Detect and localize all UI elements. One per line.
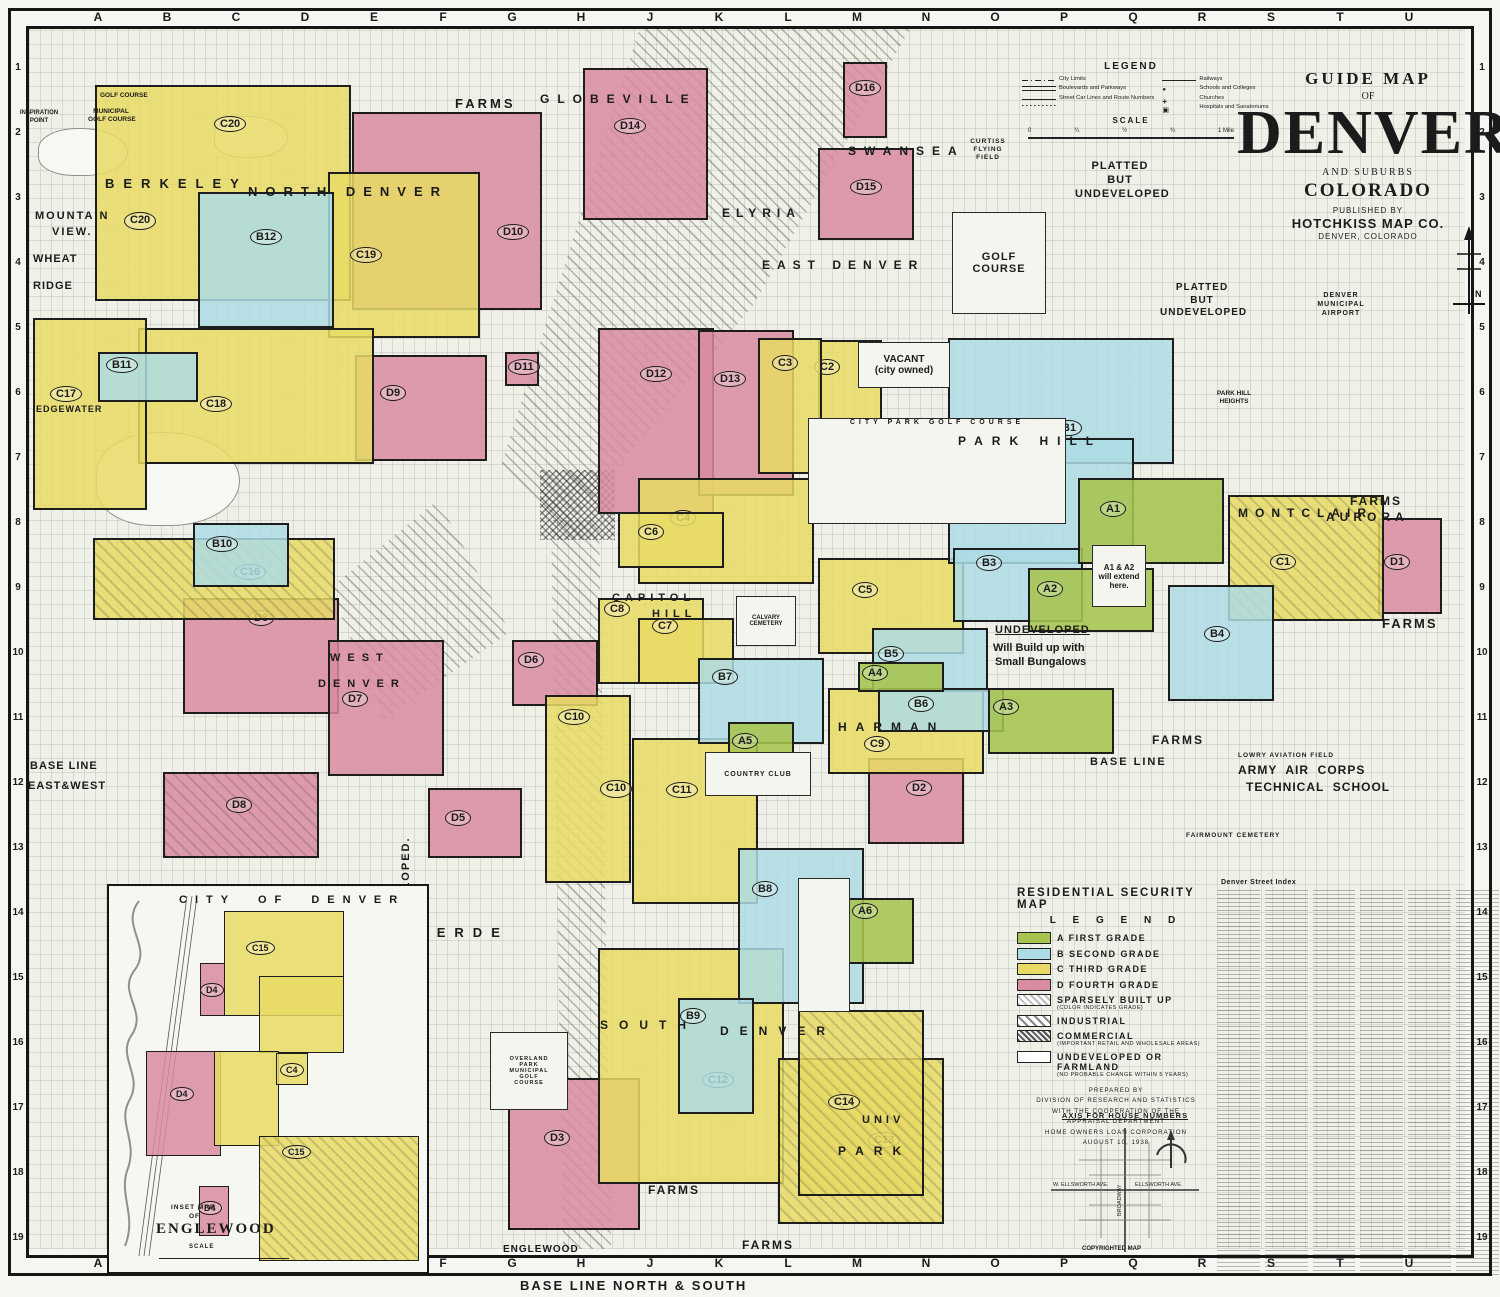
inset-title: CITY OF DENVER (179, 894, 405, 908)
rsm-item-industrial: INDUSTRIAL (1017, 1015, 1215, 1027)
grid-letter-top-Q: Q (1123, 10, 1143, 24)
region-d15: D15 (818, 148, 914, 240)
label-harman: HARMAN (838, 720, 945, 735)
white-area-label: A1 & A2 (1104, 563, 1134, 572)
title-guide-map: GUIDE MAP (1237, 69, 1499, 89)
label-base-line: BASE LINE (1090, 756, 1167, 770)
region-d14: D14 (583, 68, 708, 220)
region-d8: D8 (163, 772, 319, 858)
region-code-c9: C9 (864, 736, 890, 752)
region-d5: D5 (428, 788, 522, 858)
legend-item-label: Railways (1199, 75, 1222, 84)
region-code-b7: B7 (712, 669, 738, 685)
label-park: PARK (838, 1144, 911, 1159)
white-area-label: GOLF (982, 251, 1017, 263)
label-globeville: GLOBEVILLE (540, 92, 697, 107)
scale-tick: 1 Mile (1218, 128, 1234, 138)
title-and-suburbs: AND SUBURBS (1237, 167, 1499, 178)
label-curtiss-line: CURTISS (968, 138, 1008, 146)
grid-letter-bottom-H: H (571, 1256, 591, 1270)
label-platted-line: PLATTED (1075, 160, 1165, 174)
b-swatch (1017, 948, 1051, 960)
region-code-c19: C19 (350, 247, 382, 263)
inset-scale-bar (159, 1258, 289, 1259)
white-area-a1-a2: A1 & A2will extendhere. (1092, 545, 1146, 607)
rsm-item-commercial: COMMERCIAL(IMPORTANT RETAIL AND WHOLESAL… (1017, 1030, 1215, 1047)
inset-region-code-c4: C4 (280, 1063, 304, 1077)
street-index-column (1360, 889, 1403, 1275)
label-technical-school: TECHNICAL SCHOOL (1246, 780, 1390, 795)
region-code-c18: C18 (200, 396, 232, 412)
grid-letter-top-P: P (1054, 10, 1074, 24)
region-code-c1: C1 (1270, 554, 1296, 570)
white-area-label: COUNTRY CLUB (724, 771, 792, 778)
legend-title: LEGEND (1022, 61, 1240, 72)
region-code-b12: B12 (250, 229, 282, 245)
label-platted: PLATTEDBUTUNDEVELOPED (1075, 160, 1165, 201)
region-d9: D9 (355, 355, 487, 461)
commercial-swatch (1017, 1030, 1051, 1042)
region-code-d1: D1 (1384, 554, 1410, 570)
label-denver-line: AIRPORT (1316, 310, 1366, 319)
rsm-item-sparse: SPARSELY BUILT UP(COLOR INDICATES GRADE) (1017, 994, 1215, 1011)
region-code-d5: D5 (445, 810, 471, 826)
grid-number-left-11: 11 (11, 712, 25, 723)
region-code-c20: C20 (214, 116, 246, 132)
legend-item-label: Schools and Colleges (1199, 84, 1255, 93)
region-code-b6: B6 (908, 696, 934, 712)
dot-symbol-icon (1162, 86, 1196, 91)
grid-letter-top-C: C (226, 10, 246, 24)
grid-letter-top-U: U (1399, 10, 1419, 24)
region-code-b5: B5 (878, 646, 904, 662)
region-code-b4: B4 (1204, 626, 1230, 642)
inset-region-code-d4: D4 (200, 983, 224, 997)
white-area-label: COURSE (514, 1080, 544, 1086)
label-farms: FARMS (742, 1238, 794, 1253)
region-b12: B12 (198, 192, 334, 328)
region-a3: A3 (988, 688, 1114, 754)
compass-icon: N (1449, 224, 1489, 319)
inset-region-code-c15: C15 (246, 941, 275, 955)
legend-item-label: Churches (1199, 94, 1224, 103)
label-municipal: MUNICIPALGOLF COURSE (88, 108, 134, 124)
label-inspiration-line: POINT (18, 118, 60, 126)
grid-number-left-6: 6 (11, 387, 25, 398)
label-base-line: BASE LINE (30, 760, 98, 774)
white-area-calvary: CALVARYCEMETERY (736, 596, 796, 646)
label-aurora: AURORA (1326, 510, 1409, 525)
scale-tick: ¼ (1074, 128, 1079, 138)
grid-letter-bottom-J: J (640, 1256, 660, 1270)
rsm-item-text: C THIRD GRADE (1057, 963, 1148, 974)
rsm-item-label: INDUSTRIAL (1057, 1015, 1127, 1026)
region-code-d2: D2 (906, 780, 932, 796)
label-platted-line: PLATTED (1160, 282, 1244, 295)
grid-letter-top-R: R (1192, 10, 1212, 24)
map-legend: LEGEND City LimitsBoulevards and Parkway… (1022, 61, 1240, 139)
grid-letter-top-M: M (847, 10, 867, 24)
grid-number-left-16: 16 (11, 1037, 25, 1048)
title-published-by: PUBLISHED BY (1237, 206, 1499, 215)
grid-letter-top-O: O (985, 10, 1005, 24)
region-code-c5: C5 (852, 582, 878, 598)
legend-item-railways: Railways (1162, 75, 1268, 84)
label-south: SOUTH (600, 1018, 697, 1033)
label-hill: HILL (652, 608, 696, 622)
label-berkeley: BERKELEY (105, 176, 248, 192)
street-index-title: Denver Street Index (1221, 879, 1499, 886)
grid-letter-top-A: A (88, 10, 108, 24)
rsm-item-subtext: (NO PROBABLE CHANGE WITHIN 5 YEARS) (1057, 1072, 1215, 1078)
label-army-air-corps: ARMY AIR CORPS (1238, 763, 1365, 778)
baseline-north-south-label: BASE LINE NORTH & SOUTH (520, 1278, 747, 1293)
white-area-country-club: COUNTRY CLUB (705, 752, 811, 796)
label-fairmount-cemetery: FAIRMOUNT CEMETERY (1186, 832, 1280, 840)
white-area-vacant: VACANT(city owned) (858, 342, 950, 388)
legend-item-blank (1022, 103, 1154, 107)
region-code-a1: A1 (1100, 501, 1126, 517)
region-c6: C6 (618, 512, 724, 568)
street-index-column (1456, 889, 1499, 1275)
region-code-a4: A4 (862, 665, 888, 681)
legend-item-schools-and-colleges: Schools and Colleges (1162, 84, 1268, 93)
grid-letter-bottom-F: F (433, 1256, 453, 1270)
grid-letter-top-H: H (571, 10, 591, 24)
grid-letter-top-E: E (364, 10, 384, 24)
inset-region-c15: C15 (259, 1136, 419, 1261)
grid-letter-bottom-O: O (985, 1256, 1005, 1270)
region-a4: A4 (858, 662, 944, 692)
label-municipal-line: MUNICIPAL (88, 108, 134, 116)
grid-number-left-8: 8 (11, 517, 25, 528)
region-code-a5: A5 (732, 733, 758, 749)
label-platted: PLATTEDBUTUNDEVELOPED (1160, 282, 1244, 320)
inset-label-scale: SCALE (189, 1244, 214, 1252)
rsm-item-label: B SECOND GRADE (1057, 948, 1161, 959)
white-area-label: COURSE (972, 263, 1025, 275)
rsm-item-undeveloped: UNDEVELOPED OR FARMLAND(NO PROBABLE CHAN… (1017, 1051, 1215, 1078)
grid-number-right-6: 6 (1475, 387, 1489, 398)
region-b11: B11 (98, 352, 198, 402)
rsm-item-label: COMMERCIAL (1057, 1030, 1200, 1041)
region-b10: B10 (193, 523, 289, 587)
grid-letter-top-F: F (433, 10, 453, 24)
label-denver: DENVERMUNICIPALAIRPORT (1316, 292, 1366, 318)
rsm-subtitle: L E G E N D (1017, 915, 1215, 926)
grid-number-left-12: 12 (11, 777, 25, 788)
region-d11: D11 (505, 352, 539, 386)
axis-west-label: W. ELLSWORTH AVE. (1053, 1182, 1109, 1188)
street-index-column (1217, 889, 1260, 1275)
region-d16: D16 (843, 62, 887, 138)
grid-number-left-10: 10 (11, 647, 25, 658)
white-area-golf: GOLFCOURSE (952, 212, 1046, 314)
legend-item-city-limits: City Limits (1022, 75, 1154, 84)
region-code-d9: D9 (380, 385, 406, 401)
scale-title: SCALE (1022, 116, 1240, 125)
axis-for-house-numbers: AXIS FOR HOUSE NUMBERS W. ELLSWORTH AVE.… (1039, 1111, 1211, 1269)
grid-number-right-5: 5 (1475, 322, 1489, 333)
white-area-label: (city owned) (875, 365, 933, 376)
rsm-item-c: C THIRD GRADE (1017, 963, 1215, 975)
label-inspiration: INSPIRATIONPOINT (18, 110, 60, 125)
rsm-item-b: B SECOND GRADE (1017, 948, 1215, 960)
region-code-c6: C6 (638, 524, 664, 540)
label-denver: DENVER (318, 678, 406, 692)
label-platted-line: UNDEVELOPED (1075, 188, 1165, 202)
dots-symbol-icon (1022, 105, 1056, 107)
rsm-item-subtext: (COLOR INDICATES GRADE) (1057, 1005, 1173, 1011)
label-univ: UNIV (862, 1114, 904, 1128)
white-area-overland: OVERLANDPARKMUNICIPALGOLFCOURSE (490, 1032, 568, 1110)
grid-number-left-13: 13 (11, 842, 25, 853)
carline-symbol-icon (1022, 99, 1056, 100)
region-code-d11: D11 (508, 359, 540, 375)
label-denver-line: DENVER (1316, 292, 1366, 301)
grid-letter-bottom-L: L (778, 1256, 798, 1270)
rsm-item-label: UNDEVELOPED OR FARMLAND (1057, 1051, 1215, 1072)
grid-letter-top-J: J (640, 10, 660, 24)
legend-item-label: City Limits (1059, 75, 1086, 84)
street-index: Denver Street Index (1217, 879, 1499, 1277)
industrial-swatch (1017, 1015, 1051, 1027)
region-code-b11: B11 (106, 357, 138, 373)
rsm-item-subtext: (IMPORTANT RETAIL AND WHOLESALE AREAS) (1057, 1041, 1200, 1047)
sq-symbol-icon (1162, 105, 1196, 110)
axis-east-label: ELLSWORTH AVE. (1135, 1182, 1183, 1188)
region-code-d14: D14 (614, 118, 646, 134)
label-west: WEST (330, 652, 390, 666)
grid-number-right-9: 9 (1475, 582, 1489, 593)
rsm-item-text: D FOURTH GRADE (1057, 979, 1160, 990)
grid-letter-top-D: D (295, 10, 315, 24)
region-code-d3: D3 (544, 1130, 570, 1146)
rsm-item-label: SPARSELY BUILT UP (1057, 994, 1173, 1005)
rsm-item-text: SPARSELY BUILT UP(COLOR INDICATES GRADE) (1057, 994, 1173, 1011)
grid-letter-bottom-K: K (709, 1256, 729, 1270)
label-capitol: CAPITOL (612, 592, 695, 606)
label-wheat: WHEAT (33, 253, 78, 267)
label-c10: C10 (600, 780, 632, 798)
region-code-c14: C14 (828, 1094, 860, 1110)
grid-letter-top-G: G (502, 10, 522, 24)
inset-label-inset-map: INSET MAP (171, 1204, 215, 1212)
region-code-c10: C10 (558, 709, 590, 725)
grid-letter-bottom-G: G (502, 1256, 522, 1270)
cross-symbol-icon (1162, 96, 1196, 101)
white-area-park (798, 878, 850, 1012)
grid-number-left-18: 18 (11, 1167, 25, 1178)
label-platted-line: BUT (1075, 174, 1165, 188)
legend-item-street-car-lines-and-route-numbers: Street Car Lines and Route Numbers (1022, 94, 1154, 103)
label-farms: FARMS (1152, 733, 1204, 748)
label-mountain: MOUNTAIN (35, 210, 109, 224)
label-east-west: EAST&WEST (28, 780, 106, 794)
label-edgewater: EDGEWATER (36, 404, 102, 415)
label-north-denver: NORTH DENVER (248, 184, 448, 200)
rail-symbol-icon (1162, 80, 1196, 81)
grid-number-left-19: 19 (11, 1232, 25, 1243)
grid-number-left-3: 3 (11, 192, 25, 203)
grid-number-left-14: 14 (11, 907, 25, 918)
c-swatch (1017, 963, 1051, 975)
grid-letter-top-K: K (709, 10, 729, 24)
rsm-item-text: B SECOND GRADE (1057, 948, 1161, 959)
label-englewood: ENGLEWOOD (503, 1244, 579, 1257)
region-code-b3: B3 (976, 555, 1002, 571)
region-code-a2: A2 (1037, 581, 1063, 597)
label-platted-line: UNDEVELOPED (1160, 307, 1244, 320)
white-area-label: CITY PARK GOLF COURSE (850, 419, 1024, 426)
title-denver: DENVER (1237, 104, 1499, 163)
region-code-d15: D15 (850, 179, 882, 195)
grid-number-right-7: 7 (1475, 452, 1489, 463)
label-inspiration-line: INSPIRATION (18, 110, 60, 118)
region-b4: B4 (1168, 585, 1274, 701)
sparse-swatch (1017, 994, 1051, 1006)
grid-number-left-9: 9 (11, 582, 25, 593)
label-park-hill-line: HEIGHTS (1212, 398, 1256, 406)
label-park-hill-line: PARK HILL (1212, 390, 1256, 398)
map-canvas: ABCDEFGHJKLMNOPQRSTU ABCDEFGHJKLMNOPQRST… (0, 0, 1500, 1297)
label-curtiss: CURTISSFLYINGFIELD (968, 138, 1008, 162)
rsm-item-text: INDUSTRIAL (1057, 1015, 1127, 1026)
region-code-d7: D7 (342, 691, 368, 707)
label-east-denver: EAST DENVER (762, 258, 924, 273)
grid-number-right-11: 11 (1475, 712, 1489, 723)
title-colorado: COLORADO (1237, 180, 1499, 202)
grid-letter-top-B: B (157, 10, 177, 24)
grid-letter-bottom-M: M (847, 1256, 867, 1270)
rsm-title: RESIDENTIAL SECURITY MAP (1017, 887, 1215, 911)
label-view-: VIEW. (52, 226, 93, 240)
grid-letter-top-L: L (778, 10, 798, 24)
region-code-c3: C3 (772, 355, 798, 371)
label-farms: FARMS (1382, 616, 1438, 632)
region-code-a6: A6 (852, 903, 878, 919)
legend-item-label: Street Car Lines and Route Numbers (1059, 94, 1154, 103)
scale-tick: ½ (1122, 128, 1127, 138)
region-code-c11: C11 (666, 782, 698, 798)
region-code-d16: D16 (849, 80, 881, 96)
scale-tick: 0 (1028, 128, 1031, 138)
grid-letter-top-T: T (1330, 10, 1350, 24)
region-code-d6: D6 (518, 652, 544, 668)
title-block: GUIDE MAP OF DENVER AND SUBURBS COLORADO… (1237, 69, 1499, 241)
region-code-d12: D12 (640, 366, 672, 382)
label-platted-line: BUT (1160, 295, 1244, 308)
grid-number-right-10: 10 (1475, 647, 1489, 658)
label-curtiss-line: FLYING (968, 146, 1008, 154)
label-c20: C20 (124, 212, 156, 230)
label-undeveloped: UNDEVELOPED (995, 624, 1090, 638)
rsm-item-d: D FOURTH GRADE (1017, 979, 1215, 991)
inset-region-code-d4: D4 (170, 1087, 194, 1101)
label-farms: FARMS (1350, 494, 1402, 509)
grid-number-left-2: 2 (11, 127, 25, 138)
white-area-label: will extend (1099, 572, 1140, 581)
rsm-item-text: A FIRST GRADE (1057, 932, 1146, 943)
label-elyria: ELYRIA (722, 206, 801, 221)
region-code-d10: D10 (497, 224, 529, 240)
legend-item-label: Boulevards and Parkways (1059, 84, 1126, 93)
label-park-hill: PARK HILL (958, 434, 1102, 449)
street-index-column (1265, 889, 1308, 1275)
dashdot-symbol-icon (1022, 80, 1056, 82)
region-code-d13: D13 (714, 371, 746, 387)
rsm-item-text: COMMERCIAL(IMPORTANT RETAIL AND WHOLESAL… (1057, 1030, 1200, 1047)
rsm-footer-line: DIVISION OF RESEARCH AND STATISTICS (1017, 1096, 1215, 1107)
grid-number-right-12: 12 (1475, 777, 1489, 788)
axis-broadway-label: BROADWAY (1117, 1184, 1123, 1216)
grid-number-right-13: 13 (1475, 842, 1489, 853)
axis-title: AXIS FOR HOUSE NUMBERS (1039, 1111, 1211, 1120)
white-area-label: here. (1109, 581, 1128, 590)
label-farms: FARMS (455, 96, 516, 112)
grid-number-left-5: 5 (11, 322, 25, 333)
inset-region-d4: D4 (146, 1051, 221, 1156)
label-farms: FARMS (648, 1183, 700, 1198)
region-code-d8: D8 (226, 797, 252, 813)
inset-region-d4: D4 (200, 963, 225, 1016)
label-curtiss-line: FIELD (968, 154, 1008, 162)
label-lowry-aviation-field: LOWRY AVIATION FIELD (1238, 752, 1334, 760)
region-d1: D1 (1378, 518, 1442, 614)
grid-letter-bottom-A: A (88, 1256, 108, 1270)
inset-region-area (259, 976, 344, 1053)
rsm-item-a: A FIRST GRADE (1017, 932, 1215, 944)
double-symbol-icon (1022, 86, 1056, 91)
a-swatch (1017, 932, 1051, 944)
legend-item-label: Hospitals and Sanatoriums (1199, 103, 1268, 112)
grid-letter-top-N: N (916, 10, 936, 24)
scale-bar: 0¼½¾1 Mile (1028, 127, 1234, 139)
undeveloped-swatch (1017, 1051, 1051, 1063)
rsm-item-label: A FIRST GRADE (1057, 932, 1146, 943)
grid-number-left-17: 17 (11, 1102, 25, 1113)
map-area: D10D14D16D15D12D13D9D11D8D7D6D8D5D3D2D1C… (29, 29, 1465, 1249)
legend-item-boulevards-and-parkways: Boulevards and Parkways (1022, 84, 1154, 93)
label-denver: DENVER (720, 1024, 836, 1039)
label-park-hill: PARK HILLHEIGHTS (1212, 390, 1256, 406)
scale-tick: ¾ (1170, 128, 1175, 138)
residential-security-legend: RESIDENTIAL SECURITY MAP L E G E N D A F… (1017, 887, 1215, 1149)
grid-letter-top-S: S (1261, 10, 1281, 24)
rsm-item-label: C THIRD GRADE (1057, 963, 1148, 974)
legend-item-hospitals-and-sanatoriums: Hospitals and Sanatoriums (1162, 103, 1268, 112)
label-golf-course: GOLF COURSE (100, 92, 148, 100)
d-swatch (1017, 979, 1051, 991)
grid-number-left-15: 15 (11, 972, 25, 983)
inset-region-area (214, 1051, 279, 1146)
inset-region-c4: C4 (276, 1053, 308, 1085)
grid-number-left-1: 1 (11, 62, 25, 73)
street-index-column (1408, 889, 1451, 1275)
label-municipal-line: GOLF COURSE (88, 116, 134, 124)
white-area-label: VACANT (884, 354, 925, 365)
inset-region-code-c15: C15 (282, 1145, 311, 1159)
label-denver-line: MUNICIPAL (1316, 301, 1366, 310)
label-small-bungalows: Small Bungalows (995, 656, 1086, 670)
region-code-c17: C17 (50, 386, 82, 402)
grid-letter-bottom-N: N (916, 1256, 936, 1270)
rsm-item-text: UNDEVELOPED OR FARMLAND(NO PROBABLE CHAN… (1057, 1051, 1215, 1078)
label-ridge: RIDGE (33, 280, 73, 294)
inset-label-englewood: ENGLEWOOD (156, 1220, 276, 1239)
street-index-column (1313, 889, 1356, 1275)
rsm-item-label: D FOURTH GRADE (1057, 979, 1160, 990)
